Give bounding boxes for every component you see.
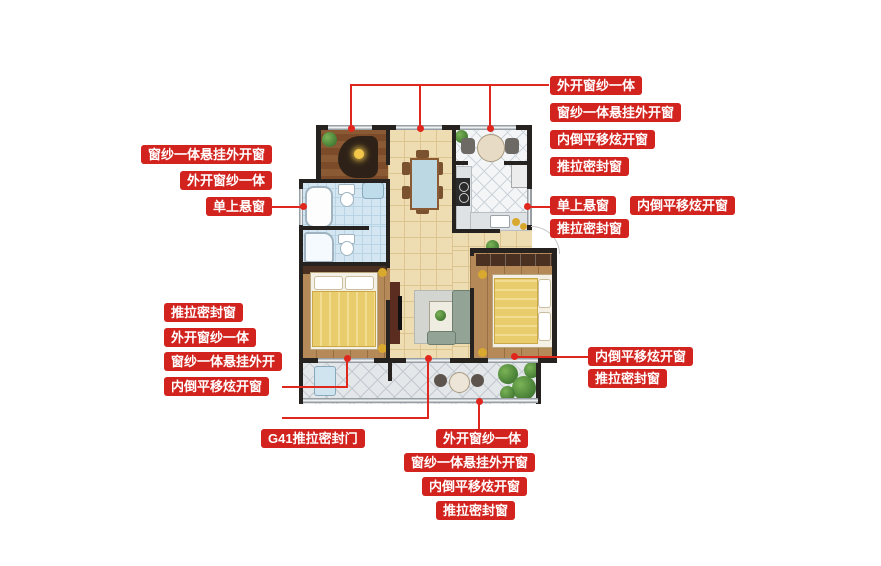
anchor-dot (425, 355, 432, 362)
connector-g41-v (427, 359, 429, 419)
nook-chair (505, 138, 519, 154)
quilt-right (494, 278, 538, 344)
balcony-chair (471, 374, 484, 387)
bath-sink (362, 182, 384, 199)
connector-left-tilt-h (282, 386, 348, 388)
label-window-type: 窗纱一体悬挂外开窗 (141, 145, 272, 164)
anchor-dot (511, 353, 518, 360)
label-window-type: 推拉密封窗 (588, 369, 667, 388)
label-window-type: 窗纱一体悬挂外开窗 (404, 453, 535, 472)
kitchen-sink (490, 215, 510, 228)
wall-balcony-divider (388, 363, 392, 381)
wall-bottom-seg (450, 358, 488, 363)
label-window-type: 推拉密封窗 (550, 157, 629, 176)
pillow (538, 279, 551, 308)
connector-left-hung-window (272, 206, 302, 208)
quilt-left (312, 291, 376, 347)
toilet-bowl (340, 192, 354, 207)
label-window-type: 内倒平移炫开窗 (164, 377, 269, 396)
wall-bottom-seg (299, 358, 318, 363)
nightstand-lamp (478, 270, 487, 279)
connector-bottom-balcony (478, 402, 480, 430)
study-lamp (354, 149, 364, 159)
label-window-type: 单上悬窗 (550, 196, 616, 215)
anchor-dot (344, 355, 351, 362)
label-window-type: 窗纱一体悬挂外开窗 (550, 103, 681, 122)
stove-burner (459, 193, 469, 203)
pillow (314, 276, 343, 290)
kitchen-dishes (512, 218, 520, 226)
label-window-type: 外开窗纱一体 (180, 171, 272, 190)
balcony-chair (434, 374, 447, 387)
balcony-washbasin (314, 366, 336, 396)
connector-right-tilt (514, 356, 588, 358)
wall-bath-divider (299, 226, 369, 230)
anchor-dot (417, 125, 424, 132)
wall-nook-right (504, 161, 532, 165)
anchor-dot (524, 203, 531, 210)
connector-top-horizontal (351, 84, 549, 86)
label-window-type: 单上悬窗 (206, 197, 272, 216)
nightstand-lamp (378, 268, 387, 277)
tv (398, 296, 402, 330)
dining-chair (416, 150, 429, 158)
connector-g41-h (282, 417, 429, 419)
balcony-table (449, 372, 470, 393)
wall-study-bottom (316, 179, 390, 183)
connector-top-drop-1 (350, 84, 352, 128)
kitchen-dishes (520, 223, 527, 230)
dining-chair (402, 186, 410, 199)
connector-left-tilt-v (346, 359, 348, 388)
wall-bedright-left (470, 288, 474, 362)
label-window-type: 外开窗纱一体 (436, 429, 528, 448)
label-window-type: 内倒平移炫开窗 (630, 196, 735, 215)
window-balcony-glazing (303, 398, 538, 403)
connector-top-drop-2 (419, 84, 421, 128)
label-window-type: 推拉密封窗 (550, 219, 629, 238)
wall-left-upper (316, 125, 321, 183)
nook-table (477, 134, 505, 162)
label-window-type: 推拉密封窗 (436, 501, 515, 520)
label-window-type: 窗纱一体悬挂外开 (164, 352, 282, 371)
wall-nook-left (452, 161, 468, 165)
connector-top-drop-3 (489, 84, 491, 128)
wall-kitchen-left (452, 125, 456, 233)
label-window-type: 内倒平移炫开窗 (588, 347, 693, 366)
label-window-type: 内倒平移炫开窗 (550, 130, 655, 149)
wall-bedleft-right (386, 262, 390, 268)
wall-bedleft-right (386, 300, 390, 362)
wardrobe-right (476, 254, 552, 266)
toilet-bowl (340, 241, 354, 256)
pillow (345, 276, 374, 290)
nightstand-lamp (478, 348, 487, 357)
label-window-type: 外开窗纱一体 (164, 328, 256, 347)
dining-chair (402, 162, 410, 175)
bathtub (305, 186, 333, 228)
anchor-dot (476, 398, 483, 405)
label-window-type: 内倒平移炫开窗 (422, 477, 527, 496)
anchor-dot (348, 125, 355, 132)
plant-study (322, 132, 337, 147)
wall-bath-right (386, 179, 390, 266)
floorplan-annotation-diagram: 外开窗纱一体 窗纱一体悬挂外开窗 内倒平移炫开窗 推拉密封窗 单上悬窗 内倒平移… (0, 0, 881, 566)
pillow (538, 312, 551, 341)
anchor-dot (487, 125, 494, 132)
balcony-plants (512, 376, 536, 400)
anchor-dot (300, 203, 307, 210)
label-window-type: 推拉密封窗 (164, 303, 243, 322)
dining-table (410, 158, 439, 210)
label-window-type: 外开窗纱一体 (550, 76, 642, 95)
shower (304, 232, 334, 263)
sofa-chaise (427, 331, 456, 345)
wall-bath2-bottom (299, 262, 390, 266)
wall-study-right (386, 125, 390, 165)
nook-chair (461, 138, 475, 154)
wall-right-bedroom (552, 248, 557, 363)
wall-bedright-top (470, 248, 532, 253)
stove-burner (459, 182, 469, 192)
coffee-table-plant (435, 310, 446, 321)
label-door-type: G41推拉密封门 (261, 429, 365, 448)
wall-kitchen-bottom (452, 229, 500, 233)
connector-right-hung-window (529, 206, 551, 208)
wall-bedright-left (470, 248, 474, 256)
